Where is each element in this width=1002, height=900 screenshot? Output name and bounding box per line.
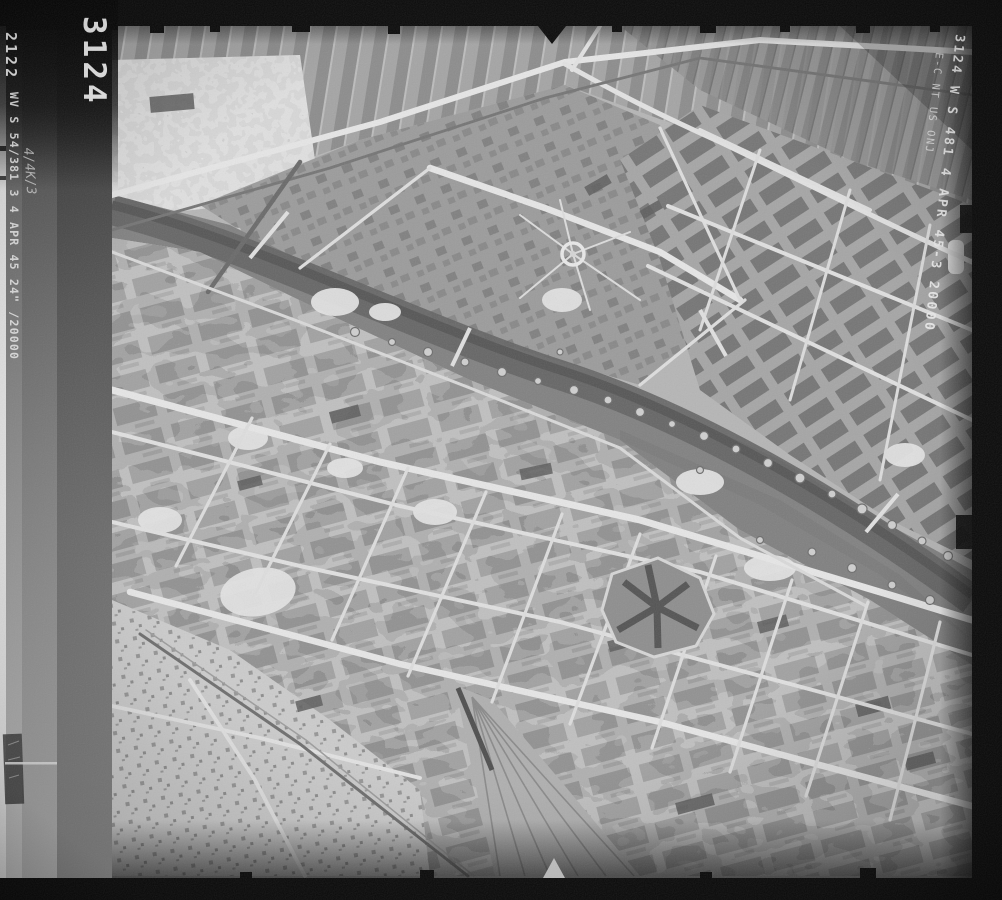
vignette-overlay <box>0 0 1002 900</box>
film-scan: 3124 2122 WV S 54/381 3 4 APR 45 24" /20… <box>0 0 1002 900</box>
aerial-reconnaissance-photo-scan: 3124 2122 WV S 54/381 3 4 APR 45 24" /20… <box>0 0 1002 900</box>
